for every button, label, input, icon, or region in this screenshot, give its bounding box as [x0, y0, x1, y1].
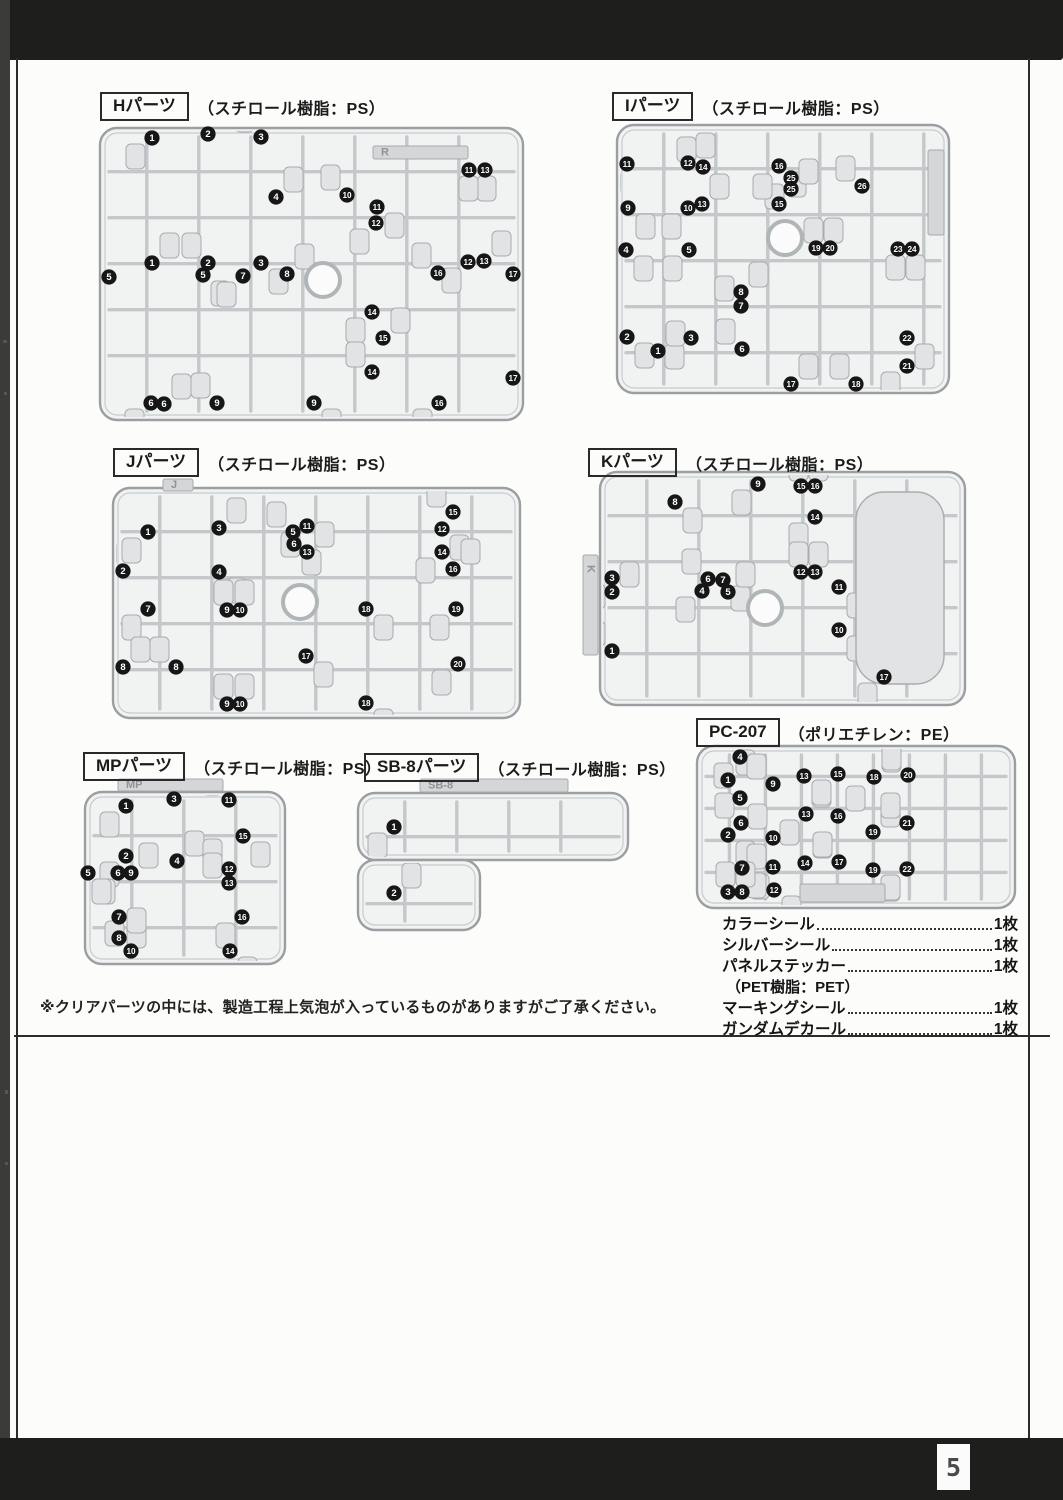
part-number-badge: 3: [683, 330, 698, 345]
svg-text:25: 25: [786, 185, 796, 194]
svg-text:11: 11: [225, 796, 234, 805]
runner-diagram-I: 1112141625252691013154519202324872316222…: [601, 125, 949, 397]
svg-text:7: 7: [240, 271, 245, 282]
part-number-badge: 2: [118, 848, 133, 863]
svg-text:15: 15: [238, 832, 248, 841]
svg-text:8: 8: [738, 287, 743, 298]
svg-text:5: 5: [725, 587, 731, 598]
part-number-badge: 10: [232, 696, 247, 711]
part-number-badge: 14: [797, 855, 812, 870]
runner-tag-plate: [163, 479, 193, 491]
svg-text:14: 14: [437, 548, 447, 557]
part-number-badge: 13: [798, 806, 813, 821]
runner-material: （スチロール樹脂：PS）: [686, 451, 873, 475]
runner-material: （スチロール樹脂：PS）: [194, 755, 381, 779]
svg-text:11: 11: [373, 203, 382, 212]
part-number-badge: 13: [477, 162, 492, 177]
accessory-sub-note: （PET樹脂：PET）: [722, 977, 1018, 998]
part-number-badge: 3: [604, 570, 619, 585]
svg-text:8: 8: [672, 497, 677, 508]
svg-text:9: 9: [755, 479, 760, 490]
svg-text:14: 14: [800, 859, 810, 868]
part-number-badge: 10: [232, 602, 247, 617]
svg-text:3: 3: [609, 573, 614, 584]
svg-text:18: 18: [851, 380, 861, 389]
runner-material: （ポリエチレン：PE）: [789, 721, 960, 745]
svg-text:13: 13: [697, 200, 707, 209]
part-number-badge: 16: [430, 265, 445, 280]
svg-text:9: 9: [224, 699, 229, 710]
svg-text:6: 6: [161, 399, 166, 410]
part-number-badge: 9: [123, 865, 138, 880]
svg-text:8: 8: [173, 662, 178, 673]
svg-text:11: 11: [769, 863, 778, 872]
part-number-badge: 6: [143, 395, 158, 410]
svg-text:17: 17: [508, 270, 518, 279]
part-number-badge: 1: [386, 819, 401, 834]
svg-text:9: 9: [625, 203, 630, 214]
large-part-silhouette: [856, 492, 944, 684]
runner-label-I: Iパーツ（スチロール樹脂：PS）: [612, 92, 890, 121]
part-number-badge: 4: [268, 189, 283, 204]
svg-text:4: 4: [216, 567, 222, 578]
part-number-badge: 9: [219, 602, 234, 617]
svg-text:3: 3: [171, 794, 176, 805]
runner-diagram-MP: MP13111524125691371681014: [80, 769, 285, 982]
accessory-count: 1枚: [994, 935, 1018, 956]
part-number-badge: 3: [253, 255, 268, 270]
accessory-count: 1枚: [994, 956, 1018, 977]
part-number-badge: 24: [904, 241, 919, 256]
part-number-badge: 11: [461, 162, 476, 177]
part-number-badge: 7: [140, 601, 155, 616]
svg-text:1: 1: [149, 133, 155, 144]
part-number-badge: 1: [144, 130, 159, 145]
accessory-count-list: カラーシール1枚シルバーシール1枚パネルステッカー1枚（PET樹脂：PET）マー…: [722, 914, 1018, 1040]
svg-text:21: 21: [902, 819, 912, 828]
part-number-badge: 1: [604, 643, 619, 658]
part-number-badge: 11: [221, 792, 236, 807]
runner-material: （スチロール樹脂：PS）: [488, 756, 675, 780]
svg-text:14: 14: [225, 947, 235, 956]
part-number-badge: 11: [831, 579, 846, 594]
dot-leader: [848, 1032, 992, 1035]
svg-text:8: 8: [116, 933, 121, 944]
svg-text:12: 12: [224, 865, 234, 874]
svg-text:20: 20: [453, 660, 463, 669]
svg-text:6: 6: [148, 398, 153, 409]
svg-text:15: 15: [833, 770, 843, 779]
svg-text:11: 11: [465, 166, 474, 175]
runner-name-box: SB-8パーツ: [364, 753, 479, 782]
svg-text:16: 16: [237, 913, 247, 922]
part-number-badge: 26: [854, 178, 869, 193]
svg-text:6: 6: [739, 344, 744, 355]
part-number-badge: 11: [619, 156, 634, 171]
svg-text:1: 1: [123, 801, 129, 812]
runner-tag-letter: K: [585, 565, 597, 573]
part-number-badge: 10: [765, 830, 780, 845]
runner-name-box: PC-207: [696, 718, 780, 747]
part-number-badge: 6: [156, 396, 171, 411]
svg-text:23: 23: [893, 245, 903, 254]
part-number-badge: 12: [368, 215, 383, 230]
svg-text:9: 9: [311, 398, 316, 409]
svg-text:10: 10: [235, 700, 245, 709]
part-number-badge: 5: [195, 267, 210, 282]
part-number-badge: 19: [865, 824, 880, 839]
part-number-badge: 16: [431, 395, 446, 410]
svg-text:10: 10: [768, 834, 778, 843]
svg-text:2: 2: [725, 830, 730, 841]
svg-text:1: 1: [149, 258, 155, 269]
part-number-badge: 17: [876, 669, 891, 684]
part-number-badge: 15: [235, 828, 250, 843]
dot-leader: [832, 948, 992, 951]
runner-diagram-J: J1356111315121416247910181988172091018: [97, 479, 520, 734]
svg-text:7: 7: [720, 575, 725, 586]
mold-hole: [306, 263, 340, 297]
part-number-badge: 13: [221, 875, 236, 890]
part-number-badge: 19: [808, 240, 823, 255]
part-number-badge: 8: [734, 884, 749, 899]
runner-material: （スチロール樹脂：PS）: [208, 451, 395, 475]
runner-label-K: Kパーツ（スチロール樹脂：PS）: [588, 448, 873, 477]
part-number-badge: 15: [771, 196, 786, 211]
runner-label-J: Jパーツ（スチロール樹脂：PS）: [113, 448, 395, 477]
dot-leader: [817, 927, 992, 930]
svg-text:11: 11: [623, 160, 632, 169]
part-number-badge: 1: [144, 255, 159, 270]
svg-text:3: 3: [688, 333, 693, 344]
accessory-row: パネルステッカー1枚: [722, 956, 1018, 977]
svg-text:14: 14: [698, 163, 708, 172]
part-number-badge: 22: [899, 861, 914, 876]
svg-text:8: 8: [120, 662, 125, 673]
part-number-badge: 8: [115, 659, 130, 674]
svg-text:5: 5: [200, 270, 206, 281]
svg-text:12: 12: [769, 886, 779, 895]
svg-text:22: 22: [902, 334, 912, 343]
part-number-badge: 10: [831, 622, 846, 637]
part-number-badge: 10: [123, 943, 138, 958]
part-number-badge: 13: [807, 564, 822, 579]
part-number-badge: 2: [604, 584, 619, 599]
part-number-badge: 11: [765, 859, 780, 874]
svg-text:17: 17: [301, 652, 311, 661]
runner-diagram-H: R123111341011121231213557816171415141766…: [83, 104, 540, 434]
part-number-badge: 17: [783, 376, 798, 391]
part-number-badge: 5: [720, 584, 735, 599]
svg-text:2: 2: [205, 258, 210, 269]
part-number-badge: 9: [765, 776, 780, 791]
svg-text:7: 7: [738, 301, 743, 312]
part-number-badge: 5: [101, 269, 116, 284]
part-number-badge: 21: [899, 358, 914, 373]
accessory-count: 1枚: [994, 914, 1018, 935]
part-number-badge: 3: [166, 791, 181, 806]
part-number-badge: 12: [434, 521, 449, 536]
accessory-row: シルバーシール1枚: [722, 935, 1018, 956]
part-number-badge: 7: [734, 860, 749, 875]
part-number-badge: 11: [299, 518, 314, 533]
mold-hole: [768, 221, 802, 255]
svg-text:15: 15: [378, 334, 388, 343]
runner-label-MP: MPパーツ（スチロール樹脂：PS）: [83, 752, 382, 781]
runner-tag-letter: R: [381, 147, 389, 159]
accessory-name: シルバーシール: [722, 935, 830, 956]
mold-hole: [283, 585, 317, 619]
svg-text:2: 2: [120, 566, 125, 577]
part-number-badge: 6: [286, 536, 301, 551]
part-number-badge: 10: [680, 200, 695, 215]
part-number-badge: 13: [299, 544, 314, 559]
runner-tag-letter: J: [171, 479, 177, 491]
svg-text:4: 4: [623, 245, 629, 256]
part-number-badge: 15: [793, 478, 808, 493]
part-number-badge: 15: [445, 504, 460, 519]
svg-text:2: 2: [123, 851, 128, 862]
svg-text:19: 19: [811, 244, 821, 253]
svg-text:10: 10: [235, 606, 245, 615]
part-number-badge: 2: [115, 563, 130, 578]
svg-text:5: 5: [106, 272, 112, 283]
part-number-badge: 8: [667, 494, 682, 509]
runner-label-SB-8: SB-8パーツ（スチロール樹脂：PS）: [364, 753, 676, 782]
svg-text:12: 12: [796, 568, 806, 577]
part-number-badge: 13: [694, 196, 709, 211]
part-number-badge: 14: [222, 943, 237, 958]
accessory-name: マーキングシール: [722, 998, 846, 1019]
svg-text:15: 15: [774, 200, 784, 209]
dot-leader: [848, 969, 992, 972]
part-number-badge: 18: [848, 376, 863, 391]
part-number-badge: 5: [681, 242, 696, 257]
svg-text:24: 24: [907, 245, 917, 254]
part-number-badge: 7: [235, 268, 250, 283]
part-number-badge: 4: [169, 853, 184, 868]
svg-text:13: 13: [810, 568, 820, 577]
part-number-badge: 8: [279, 266, 294, 281]
svg-text:8: 8: [739, 887, 744, 898]
part-number-badge: 14: [364, 304, 379, 319]
svg-text:15: 15: [796, 482, 806, 491]
svg-text:18: 18: [869, 773, 879, 782]
runner-diagram-PC-207: 419131518205131662101921711141719223812: [697, 745, 1015, 921]
runner-diagram-SB-8: SB-812: [358, 779, 628, 930]
svg-text:4: 4: [737, 752, 743, 763]
part-number-badge: 20: [900, 767, 915, 782]
svg-text:22: 22: [902, 865, 912, 874]
svg-text:13: 13: [801, 810, 811, 819]
svg-text:4: 4: [273, 192, 279, 203]
part-number-badge: 12: [793, 564, 808, 579]
svg-text:19: 19: [868, 866, 878, 875]
part-number-badge: 9: [306, 395, 321, 410]
part-number-badge: 9: [750, 476, 765, 491]
svg-text:10: 10: [342, 191, 352, 200]
bottom-binding-bar: [0, 1438, 1063, 1500]
runner-name-box: Jパーツ: [113, 448, 199, 477]
svg-text:18: 18: [361, 699, 371, 708]
svg-text:1: 1: [655, 346, 661, 357]
part-number-badge: 5: [80, 865, 95, 880]
part-number-badge: 16: [771, 158, 786, 173]
part-number-badge: 7: [733, 298, 748, 313]
accessory-name: パネルステッカー: [722, 956, 846, 977]
svg-text:5: 5: [290, 527, 296, 538]
part-number-badge: 6: [733, 815, 748, 830]
svg-text:7: 7: [145, 604, 150, 615]
part-number-badge: 14: [364, 364, 379, 379]
svg-text:16: 16: [434, 399, 444, 408]
part-number-badge: 4: [211, 564, 226, 579]
svg-text:3: 3: [258, 132, 263, 143]
part-number-badge: 23: [890, 241, 905, 256]
svg-text:10: 10: [683, 204, 693, 213]
part-number-badge: 3: [720, 884, 735, 899]
svg-text:3: 3: [216, 523, 221, 534]
part-number-badge: 17: [505, 370, 520, 385]
svg-text:14: 14: [367, 368, 377, 377]
svg-text:2: 2: [205, 129, 210, 140]
part-number-badge: 12: [766, 882, 781, 897]
svg-text:9: 9: [214, 398, 219, 409]
part-number-badge: 10: [339, 187, 354, 202]
part-number-badge: 8: [733, 284, 748, 299]
part-number-badge: 17: [831, 854, 846, 869]
part-number-badge: 6: [110, 865, 125, 880]
mold-hole: [748, 591, 782, 625]
page-number-box: 5: [937, 1444, 970, 1490]
dot-leader: [848, 1011, 992, 1014]
svg-text:14: 14: [367, 308, 377, 317]
svg-text:12: 12: [463, 258, 473, 267]
svg-text:19: 19: [868, 828, 878, 837]
part-number-badge: 4: [618, 242, 633, 257]
svg-text:6: 6: [291, 539, 296, 550]
svg-text:6: 6: [705, 574, 710, 585]
part-number-badge: 18: [358, 695, 373, 710]
part-number-badge: 19: [448, 601, 463, 616]
svg-text:11: 11: [835, 583, 844, 592]
runner-diagram-K: K9151681412131132674511017: [583, 456, 965, 708]
part-number-badge: 18: [358, 601, 373, 616]
svg-text:2: 2: [391, 888, 396, 899]
part-number-badge: 20: [822, 240, 837, 255]
svg-text:2: 2: [624, 332, 629, 343]
part-number-badge: 2: [619, 329, 634, 344]
part-number-badge: 21: [899, 815, 914, 830]
svg-text:6: 6: [738, 818, 743, 829]
svg-text:13: 13: [479, 257, 489, 266]
accessory-row: カラーシール1枚: [722, 914, 1018, 935]
runner-tag-plate: [928, 150, 944, 235]
svg-text:1: 1: [391, 822, 397, 833]
svg-text:10: 10: [126, 947, 136, 956]
svg-text:20: 20: [825, 244, 835, 253]
part-number-badge: 12: [680, 155, 695, 170]
part-number-badge: 1: [720, 772, 735, 787]
svg-text:11: 11: [303, 522, 312, 531]
svg-text:21: 21: [902, 362, 912, 371]
svg-text:9: 9: [128, 868, 133, 879]
svg-text:1: 1: [145, 527, 151, 538]
part-number-badge: 13: [796, 768, 811, 783]
part-number-badge: 15: [830, 766, 845, 781]
accessory-row: ガンダムデカール1枚: [722, 1019, 1018, 1040]
part-number-badge: 16: [234, 909, 249, 924]
runner-name-box: Kパーツ: [588, 448, 677, 477]
part-number-badge: 11: [369, 199, 384, 214]
accessory-count: 1枚: [994, 998, 1018, 1019]
svg-text:16: 16: [833, 812, 843, 821]
runner-tag-plate: [800, 884, 885, 902]
svg-text:18: 18: [361, 605, 371, 614]
svg-text:3: 3: [725, 887, 730, 898]
svg-text:13: 13: [302, 548, 312, 557]
part-number-badge: 22: [899, 330, 914, 345]
svg-text:17: 17: [786, 380, 796, 389]
runner-name-box: Hパーツ: [100, 92, 189, 121]
accessory-name: ガンダムデカール: [722, 1019, 846, 1040]
svg-text:17: 17: [508, 374, 518, 383]
runner-name-box: Iパーツ: [612, 92, 693, 121]
part-number-badge: 4: [732, 749, 747, 764]
svg-text:12: 12: [437, 525, 447, 534]
part-number-badge: 2: [720, 827, 735, 842]
svg-text:4: 4: [699, 586, 705, 597]
runner-name-box: MPパーツ: [83, 752, 185, 781]
svg-text:6: 6: [115, 868, 120, 879]
accessory-name: カラーシール: [722, 914, 815, 935]
svg-text:1: 1: [725, 775, 731, 786]
part-number-badge: 16: [807, 478, 822, 493]
svg-text:8: 8: [284, 269, 289, 280]
part-number-badge: 19: [865, 862, 880, 877]
svg-text:15: 15: [448, 508, 458, 517]
accessory-count: 1枚: [994, 1019, 1018, 1040]
svg-text:17: 17: [834, 858, 844, 867]
part-number-badge: 14: [807, 509, 822, 524]
runner-material: （スチロール樹脂：PS）: [198, 95, 385, 119]
svg-text:13: 13: [480, 166, 490, 175]
part-number-badge: 5: [732, 790, 747, 805]
runner-label-H: Hパーツ（スチロール樹脂：PS）: [100, 92, 385, 121]
part-number-badge: 17: [505, 266, 520, 281]
svg-text:3: 3: [258, 258, 263, 269]
part-number-badge: 14: [434, 544, 449, 559]
page-number: 5: [946, 1453, 961, 1482]
svg-text:20: 20: [903, 771, 913, 780]
svg-text:9: 9: [224, 605, 229, 616]
part-number-badge: 9: [219, 696, 234, 711]
part-number-badge: 9: [620, 200, 635, 215]
svg-text:4: 4: [174, 856, 180, 867]
part-number-badge: 16: [830, 808, 845, 823]
part-number-badge: 3: [253, 129, 268, 144]
svg-text:7: 7: [116, 912, 121, 923]
svg-text:1: 1: [609, 646, 615, 657]
part-number-badge: 2: [386, 885, 401, 900]
part-number-badge: 1: [140, 524, 155, 539]
part-number-badge: 8: [111, 930, 126, 945]
svg-text:26: 26: [857, 182, 867, 191]
part-number-badge: 12: [221, 861, 236, 876]
svg-text:10: 10: [834, 626, 844, 635]
manual-page: R123111341011121231213557816171415141766…: [0, 0, 1063, 1500]
part-number-badge: 16: [445, 561, 460, 576]
